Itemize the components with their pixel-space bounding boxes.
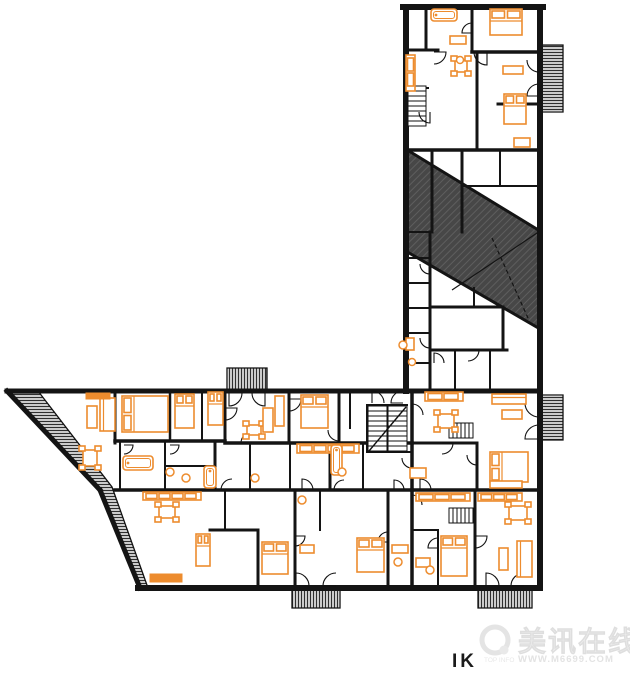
cabinet — [275, 396, 284, 426]
appliance — [342, 446, 354, 452]
appliance — [444, 394, 458, 400]
sideboard — [150, 574, 182, 582]
door-arc — [428, 538, 438, 548]
pillow — [210, 394, 214, 401]
box-icon — [263, 408, 273, 432]
bed-icon — [196, 534, 210, 566]
box-icon — [514, 138, 530, 147]
watermark-logo-icon — [482, 627, 509, 655]
fixture — [394, 558, 402, 566]
door-arc — [434, 52, 446, 64]
hatch-layer — [7, 45, 563, 608]
sideboard — [86, 393, 110, 399]
chair — [505, 519, 511, 524]
pillow — [492, 454, 499, 466]
pillow — [508, 11, 521, 18]
box-icon — [450, 36, 466, 44]
chair — [173, 502, 179, 507]
counter-icon — [478, 493, 522, 501]
door-arc — [486, 573, 499, 586]
cabinet — [450, 36, 466, 44]
round-icon — [298, 496, 306, 504]
pillow — [303, 397, 313, 404]
pillow — [316, 397, 326, 404]
counter-icon — [143, 492, 201, 500]
cabinet — [410, 468, 426, 478]
pillow — [456, 538, 466, 545]
appliance — [159, 494, 170, 499]
round-icon — [426, 566, 434, 574]
appliance — [408, 58, 414, 71]
pillow — [124, 416, 131, 431]
tub-drain — [209, 470, 212, 473]
chair — [155, 517, 161, 522]
cabinet — [300, 545, 314, 553]
door-arc — [229, 393, 242, 406]
door-arc — [252, 393, 265, 406]
chair — [95, 446, 101, 451]
pillow — [277, 544, 287, 551]
round-icon — [182, 474, 190, 482]
chair — [434, 410, 440, 415]
fixture — [426, 566, 434, 574]
fixture — [409, 359, 416, 366]
floor-plan-page: 美讯在线 TOP INFO WWW.M6699.COM IK — [0, 0, 630, 673]
fixture — [182, 474, 190, 482]
box-icon — [300, 545, 314, 553]
chair — [243, 434, 249, 439]
box-icon — [490, 481, 522, 488]
door-arc — [323, 573, 336, 586]
table-icon — [79, 446, 101, 470]
sofa-icon — [492, 394, 526, 404]
sofa-icon — [100, 398, 115, 431]
box-icon — [503, 66, 523, 74]
bed-icon — [175, 394, 194, 428]
appliance — [185, 494, 196, 499]
tub-drain — [435, 14, 438, 17]
round-icon — [251, 474, 259, 482]
pillow — [198, 536, 202, 543]
box-icon — [499, 548, 508, 570]
bed-icon — [262, 542, 288, 574]
chair — [452, 427, 458, 432]
door-arc — [328, 430, 339, 441]
appliance — [300, 446, 312, 452]
pillow — [372, 540, 382, 547]
round-icon — [409, 359, 416, 366]
door-arc — [525, 425, 539, 439]
round-icon — [166, 468, 174, 476]
balcony-right-mid-hatch — [541, 395, 563, 440]
chair — [451, 71, 457, 76]
door-arc — [468, 350, 479, 361]
watermark: 美讯在线 TOP INFO WWW.M6699.COM IK — [452, 626, 630, 672]
counter-icon — [297, 444, 359, 453]
pillow — [492, 469, 499, 481]
fixture — [298, 496, 306, 504]
cabinet — [87, 406, 97, 428]
pillow — [264, 544, 274, 551]
watermark-title: 美讯在线 — [518, 626, 630, 657]
door-arc — [225, 408, 237, 420]
bed-icon — [504, 94, 526, 124]
bed-icon — [441, 536, 467, 576]
cabinet — [514, 138, 530, 147]
cabinet — [392, 545, 408, 553]
chair — [465, 56, 471, 61]
door-arc — [442, 443, 453, 454]
table-top — [83, 450, 97, 466]
round-icon — [457, 57, 464, 64]
fixture — [338, 468, 346, 476]
tub-icon — [431, 9, 457, 21]
tub-drain — [335, 449, 338, 452]
bar-icon — [86, 393, 110, 399]
chair — [243, 421, 249, 426]
roof-terrace-hatch — [404, 148, 540, 329]
appliance — [494, 495, 505, 500]
door-arc — [124, 445, 133, 454]
fixture — [251, 474, 259, 482]
table-icon — [505, 502, 531, 524]
box-icon — [87, 406, 97, 428]
tub-icon — [123, 456, 153, 470]
table-icon — [243, 421, 265, 439]
appliance — [419, 495, 433, 500]
bed-icon — [490, 9, 522, 35]
chair — [79, 446, 85, 451]
chair — [155, 502, 161, 507]
cabinet — [490, 481, 522, 488]
chair — [452, 410, 458, 415]
pillow — [506, 96, 514, 103]
tub-drain — [127, 462, 130, 465]
appliance — [172, 494, 183, 499]
pillow — [517, 96, 525, 103]
appliance — [451, 495, 465, 500]
chair — [525, 502, 531, 507]
fixture — [399, 341, 407, 349]
pillow — [124, 398, 131, 413]
box-icon — [410, 468, 426, 478]
counter-icon — [416, 493, 470, 501]
tub-icon — [204, 466, 216, 488]
floor-plan-canvas: 美讯在线 TOP INFO WWW.M6699.COM IK — [0, 0, 630, 673]
stairs-icon — [368, 406, 407, 452]
fixture — [166, 468, 174, 476]
appliance — [408, 73, 414, 86]
cabinet — [499, 548, 508, 570]
appliance — [428, 394, 442, 400]
appliance — [481, 495, 492, 500]
pillow — [177, 396, 183, 403]
counter-icon — [406, 55, 415, 91]
appliance — [435, 495, 449, 500]
table-icon — [434, 410, 458, 432]
door-arc — [525, 403, 539, 417]
pillow — [205, 536, 209, 543]
cabinet — [502, 410, 522, 419]
round-icon — [399, 341, 407, 349]
cabinet — [503, 66, 523, 74]
chair — [505, 502, 511, 507]
door-arc — [289, 399, 301, 411]
appliance — [314, 446, 326, 452]
furniture-layer — [79, 9, 532, 582]
cabinet — [263, 408, 273, 432]
bed-icon — [357, 538, 384, 572]
pillow — [492, 11, 505, 18]
chair — [525, 519, 531, 524]
bed-icon — [122, 396, 168, 432]
pillow — [443, 538, 453, 545]
chair — [173, 517, 179, 522]
round-icon — [394, 558, 402, 566]
door-arc — [475, 536, 487, 548]
appliance — [506, 495, 517, 500]
pillow — [217, 394, 221, 401]
watermark-subtitle: WWW.M6699.COM — [518, 654, 614, 665]
pillow — [186, 396, 192, 403]
table-top — [438, 414, 454, 428]
round-icon — [338, 468, 346, 476]
chair — [79, 465, 85, 470]
sofa-body — [492, 394, 526, 404]
table-icon — [155, 502, 179, 522]
fixture — [457, 57, 464, 64]
wall — [100, 490, 140, 588]
chair — [259, 434, 265, 439]
bed-icon — [490, 452, 528, 482]
box-icon — [416, 558, 430, 567]
bed-icon — [301, 395, 328, 428]
appliance — [146, 494, 157, 499]
box-icon — [502, 410, 522, 419]
chair — [434, 427, 440, 432]
table-top — [509, 506, 527, 520]
watermark-prefix: TOP INFO — [484, 657, 514, 664]
sofa-body — [100, 398, 115, 431]
tub-outline — [204, 466, 216, 488]
door-arc — [434, 353, 444, 363]
sofa-body — [517, 541, 532, 577]
stairs-icon — [449, 508, 473, 523]
chair — [465, 71, 471, 76]
door-arc — [296, 573, 309, 586]
box-icon — [275, 396, 284, 426]
pillow — [359, 540, 369, 547]
balcony-right-top-hatch — [541, 45, 563, 112]
chair — [95, 465, 101, 470]
bed-icon — [208, 392, 223, 425]
wall — [7, 391, 100, 490]
box-icon — [392, 545, 408, 553]
cabinet — [416, 558, 430, 567]
counter-icon — [425, 392, 463, 401]
door-arc — [170, 445, 179, 454]
bar-icon — [150, 574, 182, 582]
plan-caption: IK — [452, 651, 477, 672]
balcony-top-hatch — [227, 368, 267, 391]
stairs-icon — [408, 86, 426, 126]
sofa-icon — [517, 541, 532, 577]
